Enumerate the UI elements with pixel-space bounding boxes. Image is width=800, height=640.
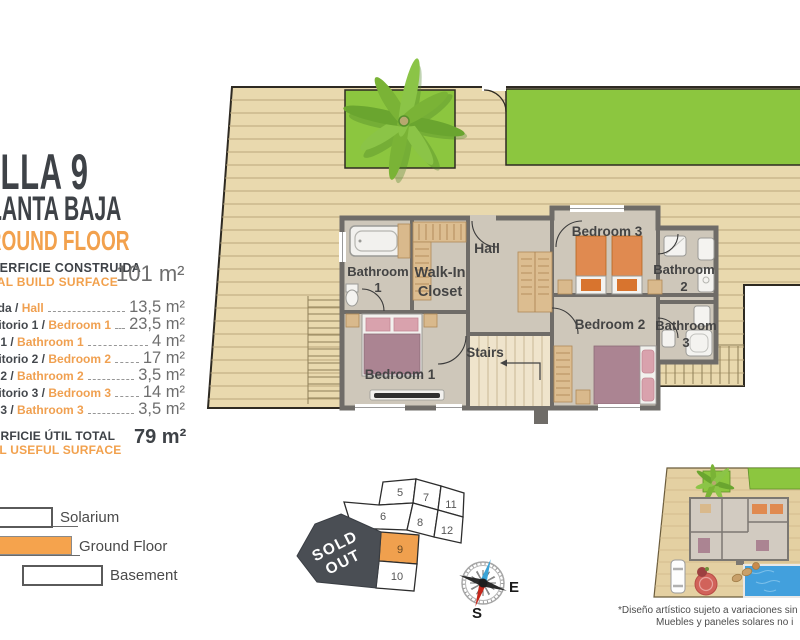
room-area: 3,5 m² bbox=[138, 401, 185, 418]
disclaimer-line-1: *Diseño artístico sujeto a variaciones s… bbox=[618, 605, 800, 616]
room-row-bathroom2: Baño 2 / Bathroom 23,5 m² bbox=[0, 367, 185, 384]
toilet bbox=[346, 284, 358, 306]
house: Bathroom 1 Walk-In Closet Hall Bedroom 3… bbox=[339, 205, 717, 424]
room-row-hall: Entrada / Hall13,5 m² bbox=[0, 299, 185, 316]
room-area: 3,5 m² bbox=[138, 367, 185, 384]
plot-number-7: 7 bbox=[423, 492, 429, 504]
plot-number-12: 12 bbox=[441, 525, 453, 537]
mini-overview-plan bbox=[650, 464, 800, 597]
mini-house bbox=[690, 498, 788, 565]
room-label-bathroom2: Bathroom bbox=[653, 262, 714, 277]
dot-leader bbox=[88, 345, 148, 346]
room-label-walkin-1: Walk-In bbox=[414, 265, 465, 281]
legend-label-basement: Basement bbox=[110, 567, 178, 584]
dot-leader bbox=[115, 328, 125, 329]
plot-number-9: 9 bbox=[397, 544, 403, 556]
build-surface-value: 101 m² bbox=[116, 261, 184, 287]
legend-label-solarium: Solarium bbox=[60, 509, 119, 526]
bedroom2-wardrobe bbox=[554, 346, 572, 402]
wall-stub bbox=[534, 408, 548, 424]
dot-leader bbox=[115, 396, 139, 397]
room-area: 4 m² bbox=[152, 333, 185, 350]
room-en: Hall bbox=[22, 301, 44, 315]
plot-number-8: 8 bbox=[417, 517, 423, 529]
room-en: Bathroom 2 bbox=[17, 369, 84, 383]
room-es: Baño 3 bbox=[0, 403, 7, 417]
room-area: 17 m² bbox=[143, 350, 185, 367]
legend-label-ground-floor: Ground Floor bbox=[79, 538, 167, 555]
brochure-page: Bathroom 1 Walk-In Closet Hall Bedroom 3… bbox=[0, 0, 800, 640]
room-label-bedroom3: Bedroom 3 bbox=[572, 224, 643, 239]
dot-leader bbox=[48, 311, 125, 312]
room-label-hall: Hall bbox=[474, 240, 500, 256]
room-es: Baño 2 bbox=[0, 369, 7, 383]
useful-surface-label-es: SUPERFICIE ÚTIL TOTAL bbox=[0, 429, 121, 443]
room-es: Entrada bbox=[0, 301, 12, 315]
room-en: Bathroom 1 bbox=[17, 335, 84, 349]
room-row-bedroom2: Dormitorio 2 / Bedroom 217 m² bbox=[0, 350, 185, 367]
bath1-cabinet bbox=[398, 224, 410, 258]
compass-label-east: E bbox=[509, 579, 519, 596]
room-label-bathroom3: Bathroom bbox=[655, 318, 716, 333]
room-label-bathroom2-num: 2 bbox=[680, 279, 687, 294]
lawn bbox=[506, 89, 800, 165]
useful-surface-value: 79 m² bbox=[134, 426, 186, 449]
compass-icon: E S bbox=[451, 551, 519, 622]
mini-car-icon bbox=[671, 560, 685, 593]
room-label-bathroom1-num: 1 bbox=[374, 280, 381, 295]
room-label-bedroom1: Bedroom 1 bbox=[365, 367, 436, 382]
compass-label-south: S bbox=[472, 605, 482, 622]
bathtub bbox=[350, 226, 402, 256]
legend-bar-ground-floor bbox=[0, 536, 72, 555]
plot-number-11: 11 bbox=[445, 499, 456, 511]
room-area: 14 m² bbox=[143, 384, 185, 401]
room-en: Bathroom 3 bbox=[17, 403, 84, 417]
plot-number-5: 5 bbox=[397, 487, 403, 499]
mini-pool bbox=[744, 565, 800, 597]
room-row-bathroom3: Baño 3 / Bathroom 33,5 m² bbox=[0, 401, 185, 418]
disclaimer-line-2: Muebles y paneles solares no i bbox=[656, 617, 793, 628]
room-label-stairs: Stairs bbox=[466, 345, 504, 360]
room-en: Bedroom 2 bbox=[48, 352, 111, 366]
plot-location-map: SOLD OUT 5 7 11 6 8 12 9 10 bbox=[297, 479, 464, 591]
floor-name-es: PLANTA BAJA bbox=[0, 190, 121, 229]
dot-leader bbox=[115, 362, 139, 363]
room-area: 23,5 m² bbox=[129, 316, 185, 333]
tv-stand bbox=[370, 390, 444, 400]
mini-lawn bbox=[748, 468, 800, 489]
room-row-bathroom1: Baño 1 / Bathroom 14 m² bbox=[0, 333, 185, 350]
dot-leader bbox=[88, 379, 135, 380]
useful-surface-label-en: TOTAL USEFUL SURFACE bbox=[0, 443, 121, 457]
room-es: Dormitorio 1 bbox=[0, 318, 38, 332]
room-en: Bedroom 3 bbox=[48, 386, 111, 400]
room-es: Baño 1 bbox=[0, 335, 7, 349]
legend-bar-basement bbox=[22, 565, 103, 586]
plot-number-10: 10 bbox=[391, 571, 403, 583]
room-es: Dormitorio 3 bbox=[0, 386, 38, 400]
room-area: 13,5 m² bbox=[129, 299, 185, 316]
legend-line-2 bbox=[0, 555, 80, 556]
room-label-walkin-2: Closet bbox=[418, 284, 462, 300]
room-row-bedroom3: Dormitorio 3 / Bedroom 314 m² bbox=[0, 384, 185, 401]
room-en: Bedroom 1 bbox=[48, 318, 111, 332]
hall-wardrobe bbox=[518, 252, 552, 312]
plot-number-6: 6 bbox=[380, 511, 386, 523]
floor-name-en: GROUND FLOOR bbox=[0, 225, 130, 257]
useful-surface-labels: SUPERFICIE ÚTIL TOTAL TOTAL USEFUL SURFA… bbox=[0, 429, 121, 457]
room-es: Dormitorio 2 bbox=[0, 352, 38, 366]
room-row-bedroom1: Dormitorio 1 / Bedroom 123,5 m² bbox=[0, 316, 185, 333]
room-label-bedroom2: Bedroom 2 bbox=[575, 317, 646, 332]
dot-leader bbox=[88, 413, 135, 414]
legend-bar-solarium bbox=[0, 507, 53, 528]
room-label-bathroom1: Bathroom bbox=[347, 264, 408, 279]
room-label-bathroom3-num: 3 bbox=[682, 335, 689, 350]
